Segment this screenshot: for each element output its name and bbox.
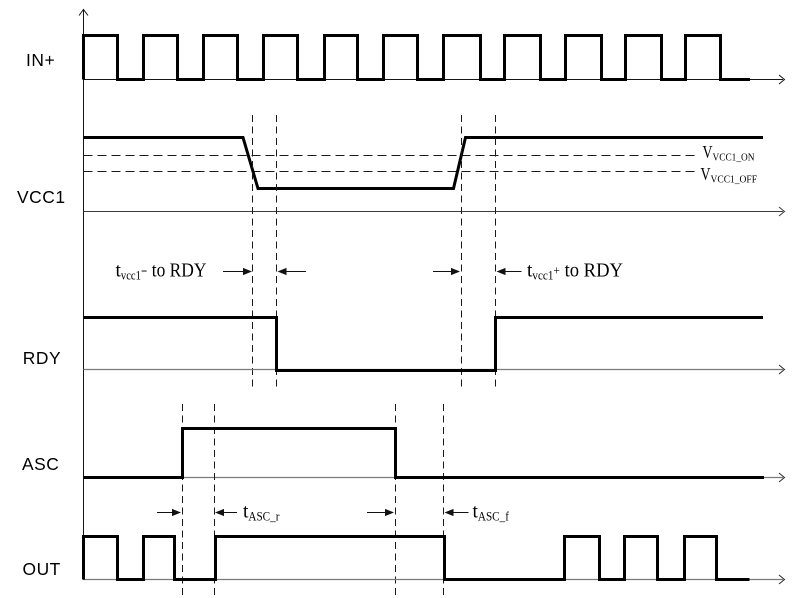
svg-text:VCC1: VCC1 <box>17 187 66 207</box>
svg-text:OUT: OUT <box>23 559 61 579</box>
svg-text:IN+: IN+ <box>26 50 55 70</box>
svg-text:RDY: RDY <box>23 348 61 368</box>
svg-text:ASC: ASC <box>22 454 59 474</box>
